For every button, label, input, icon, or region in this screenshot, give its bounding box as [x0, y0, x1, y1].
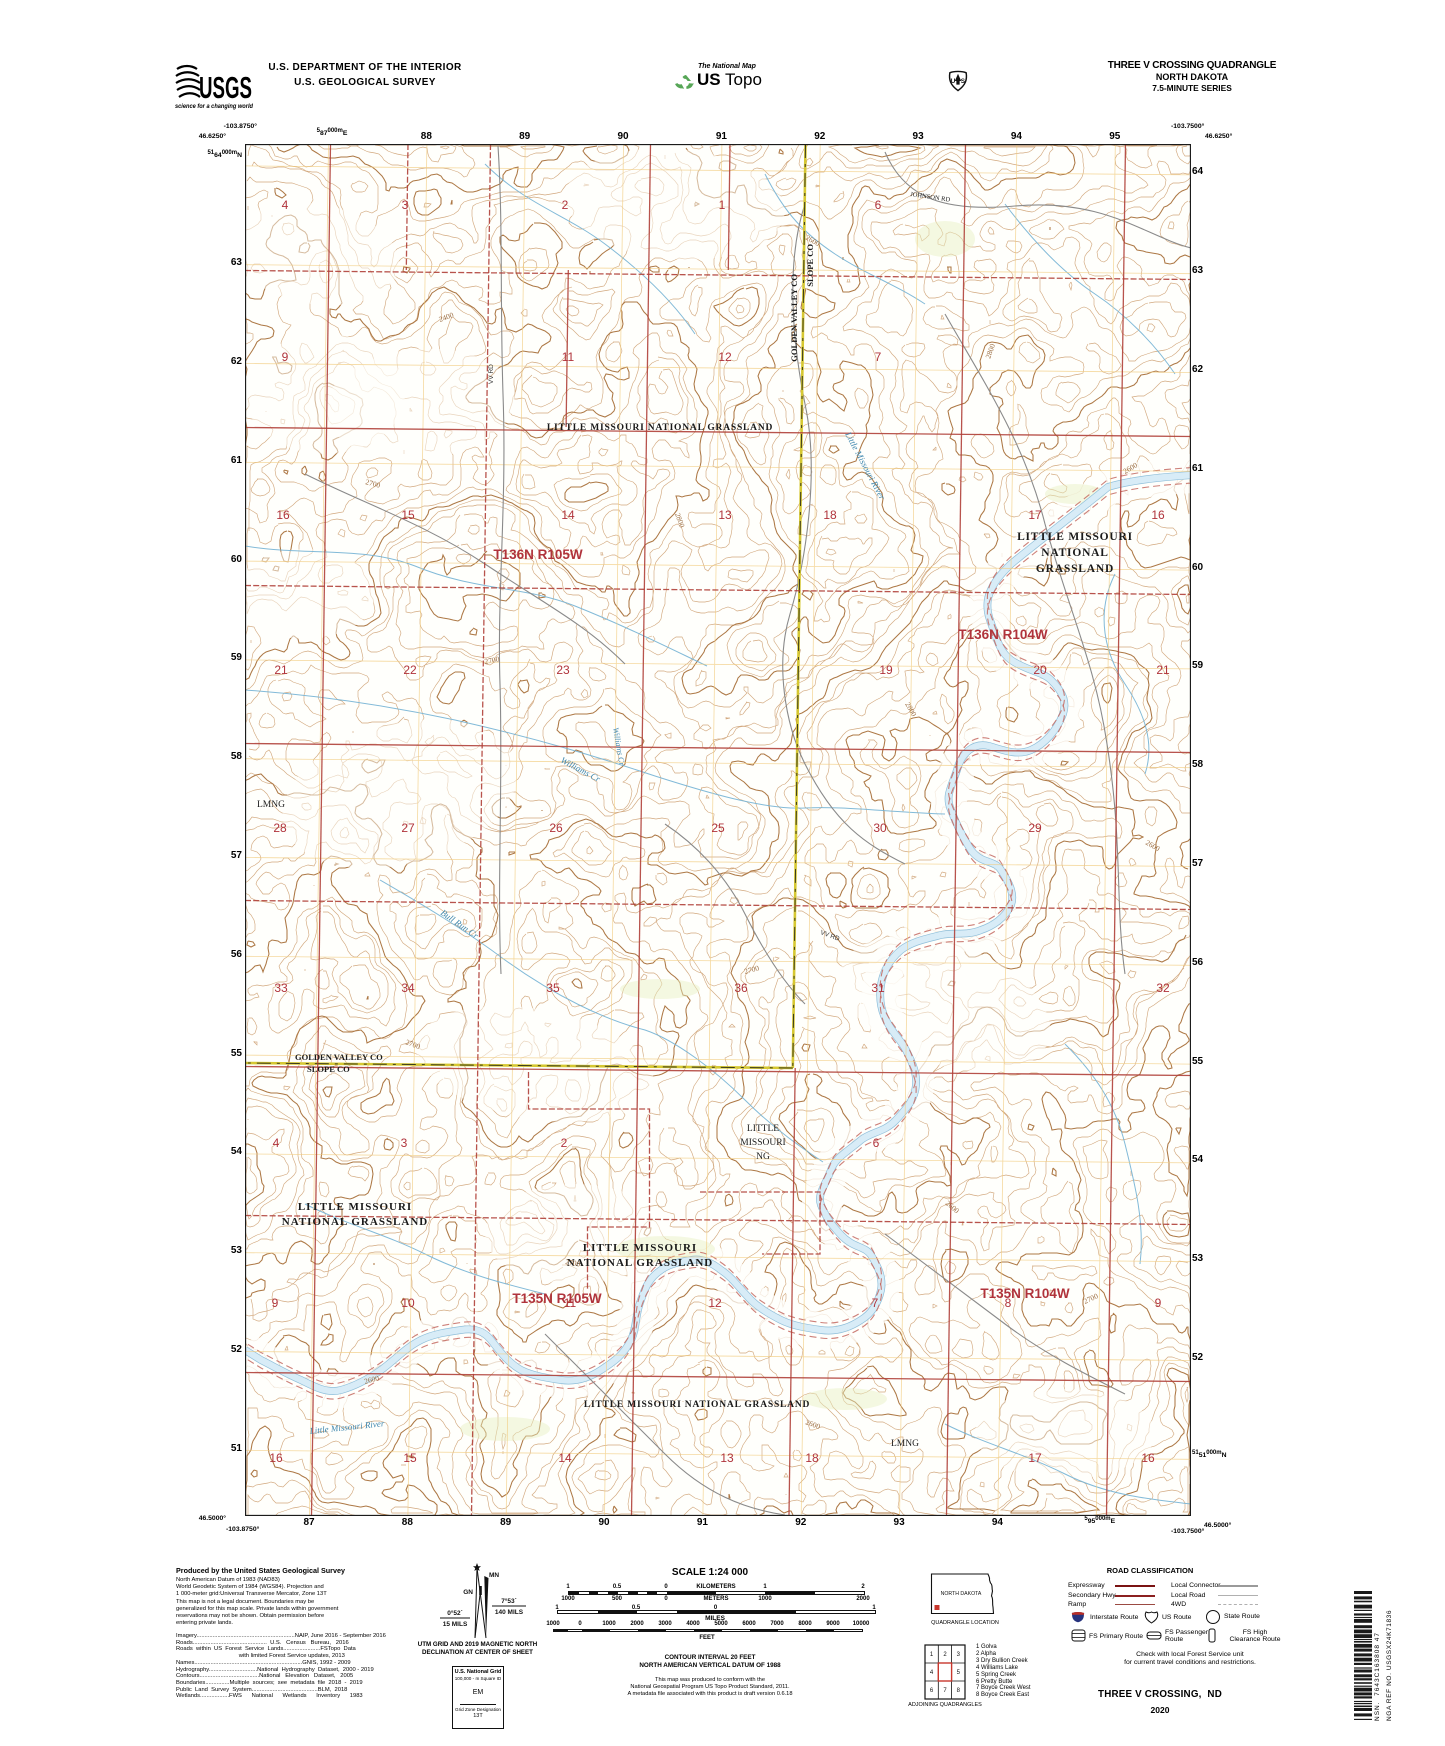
svg-text:31: 31 [871, 981, 885, 995]
svg-text:LMNG: LMNG [257, 800, 285, 810]
svg-text:17: 17 [1028, 1451, 1042, 1465]
svg-text:14: 14 [561, 508, 575, 522]
svg-text:9: 9 [271, 1296, 278, 1310]
svg-text:10: 10 [401, 1296, 415, 1310]
svg-text:3: 3 [401, 198, 408, 212]
svg-text:16: 16 [276, 508, 290, 522]
svg-text:NATIONAL GRASSLAND: NATIONAL GRASSLAND [281, 1216, 427, 1228]
svg-text:science for a changing world: science for a changing world [175, 103, 254, 110]
svg-text:3: 3 [400, 1136, 407, 1150]
svg-text:0°52´: 0°52´ [447, 1609, 463, 1617]
svg-text:20: 20 [1033, 663, 1047, 677]
svg-text:12: 12 [708, 1296, 722, 1310]
svg-text:15 MILS: 15 MILS [443, 1621, 468, 1628]
svg-text:2: 2 [560, 1136, 567, 1150]
svg-text:36: 36 [734, 981, 748, 995]
svg-text:LMNG: LMNG [891, 1439, 919, 1449]
svg-text:15: 15 [403, 1451, 417, 1465]
svg-text:U: U [951, 78, 956, 85]
svg-text:11: 11 [561, 350, 574, 364]
svg-text:2: 2 [561, 198, 568, 212]
svg-text:T136N R104W: T136N R104W [958, 627, 1048, 642]
svg-text:26: 26 [549, 821, 563, 835]
svg-text:9: 9 [281, 350, 288, 364]
svg-text:18: 18 [823, 508, 837, 522]
svg-text:LITTLE MISSOURI NATIONAL GRASS: LITTLE MISSOURI NATIONAL GRASSLAND [583, 1400, 809, 1410]
svg-text:6: 6 [872, 1136, 879, 1150]
svg-text:NATIONAL: NATIONAL [1041, 547, 1109, 559]
svg-text:12: 12 [718, 350, 732, 364]
svg-text:21: 21 [274, 663, 288, 677]
svg-text:18: 18 [805, 1451, 819, 1465]
svg-text:7°53´: 7°53´ [501, 1597, 517, 1605]
svg-text:GRASSLAND: GRASSLAND [1035, 563, 1113, 575]
svg-text:33: 33 [274, 981, 288, 995]
svg-text:9: 9 [1154, 1296, 1161, 1310]
svg-text:17: 17 [1028, 508, 1042, 522]
svg-text:NG: NG [756, 1152, 770, 1162]
svg-text:23: 23 [556, 663, 570, 677]
svg-text:NATIONAL GRASSLAND: NATIONAL GRASSLAND [566, 1257, 712, 1269]
svg-text:21: 21 [1156, 663, 1170, 677]
svg-text:MISSOURI: MISSOURI [740, 1138, 785, 1148]
svg-text:32: 32 [1156, 981, 1170, 995]
svg-text:7: 7 [874, 350, 881, 364]
svg-text:16: 16 [1141, 1451, 1155, 1465]
svg-text:35: 35 [546, 981, 560, 995]
svg-text:VV RD: VV RD [488, 363, 495, 383]
svg-text:14: 14 [558, 1451, 572, 1465]
svg-text:25: 25 [711, 821, 725, 835]
svg-text:LITTLE MISSOURI NATIONAL GRASS: LITTLE MISSOURI NATIONAL GRASSLAND [546, 423, 772, 433]
svg-text:LITTLE: LITTLE [746, 1124, 778, 1134]
svg-text:MN: MN [489, 1572, 499, 1579]
svg-text:1: 1 [718, 198, 725, 212]
svg-text:GOLDEN VALLEY CO: GOLDEN VALLEY CO [789, 273, 799, 361]
svg-text:140 MILS: 140 MILS [495, 1609, 524, 1616]
svg-text:4: 4 [281, 198, 288, 212]
svg-text:29: 29 [1028, 821, 1042, 835]
svg-text:S: S [961, 78, 965, 85]
svg-text:T135N R104W: T135N R104W [980, 1286, 1070, 1301]
svg-text:34: 34 [401, 981, 415, 995]
svg-text:NORTH DAKOTA: NORTH DAKOTA [941, 1591, 982, 1597]
svg-text:22: 22 [403, 663, 417, 677]
svg-text:SLOPE CO: SLOPE CO [307, 1064, 350, 1074]
svg-text:SLOPE CO: SLOPE CO [805, 243, 815, 286]
svg-text:LITTLE MISSOURI: LITTLE MISSOURI [1017, 531, 1133, 543]
svg-text:GOLDEN VALLEY CO: GOLDEN VALLEY CO [295, 1052, 383, 1062]
svg-text:16: 16 [1151, 508, 1165, 522]
svg-text:15: 15 [401, 508, 415, 522]
svg-text:27: 27 [401, 821, 415, 835]
svg-text:30: 30 [873, 821, 887, 835]
svg-text:GN: GN [463, 1589, 473, 1596]
svg-text:6: 6 [874, 198, 881, 212]
svg-text:T136N R105W: T136N R105W [493, 547, 583, 562]
svg-text:LITTLE MISSOURI: LITTLE MISSOURI [297, 1201, 411, 1213]
svg-text:16: 16 [269, 1451, 283, 1465]
svg-text:LITTLE MISSOURI: LITTLE MISSOURI [582, 1242, 696, 1254]
svg-text:28: 28 [273, 821, 287, 835]
svg-text:13: 13 [718, 508, 732, 522]
svg-text:13: 13 [720, 1451, 734, 1465]
svg-text:4: 4 [272, 1136, 279, 1150]
svg-text:19: 19 [879, 663, 893, 677]
svg-text:7: 7 [871, 1296, 878, 1310]
svg-text:T135N R105W: T135N R105W [512, 1291, 602, 1306]
